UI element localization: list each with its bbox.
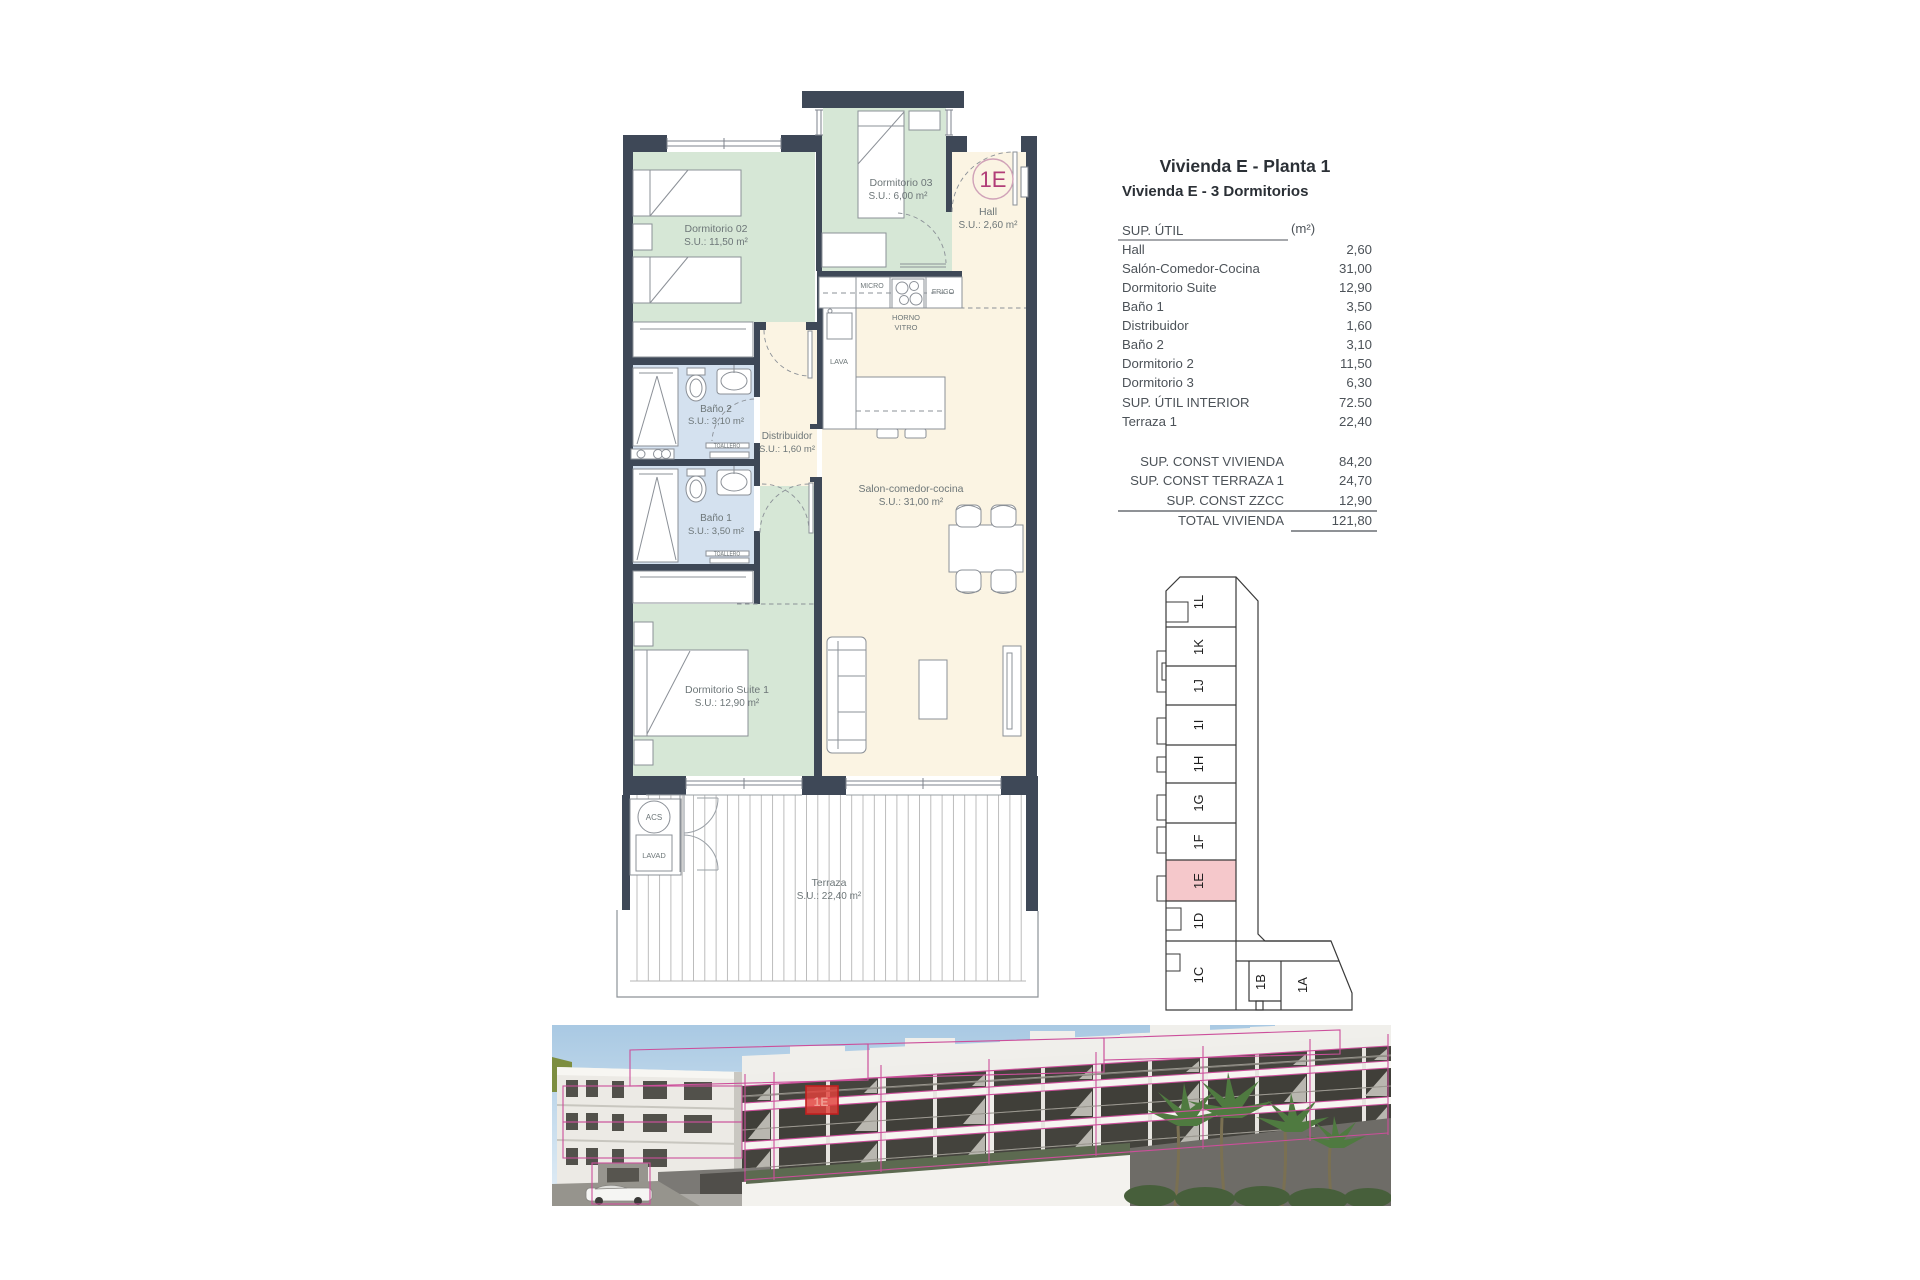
- svg-text:LAVA: LAVA: [830, 357, 848, 366]
- svg-text:1E: 1E: [1191, 873, 1206, 889]
- svg-text:Baño 1: Baño 1: [700, 513, 732, 524]
- svg-text:TOALLERO: TOALLERO: [714, 444, 741, 450]
- svg-text:1L: 1L: [1191, 595, 1206, 609]
- svg-text:S.U.: 1,60 m²: S.U.: 1,60 m²: [759, 444, 815, 455]
- svg-text:Vivienda E - Planta 1: Vivienda E - Planta 1: [1160, 156, 1331, 176]
- svg-text:12,90: 12,90: [1339, 493, 1372, 508]
- svg-text:VITRO: VITRO: [895, 323, 918, 332]
- svg-text:24,70: 24,70: [1339, 473, 1372, 488]
- svg-text:S.U.: 2,60 m²: S.U.: 2,60 m²: [959, 220, 1019, 231]
- svg-text:Baño 2: Baño 2: [700, 404, 732, 415]
- svg-text:1G: 1G: [1191, 794, 1206, 811]
- svg-text:1E: 1E: [814, 1095, 829, 1109]
- svg-text:S.U.: 3,50 m²: S.U.: 3,50 m²: [688, 526, 744, 537]
- svg-text:Salon-comedor-cocina: Salon-comedor-cocina: [858, 483, 963, 495]
- svg-text:Terraza: Terraza: [811, 877, 846, 889]
- svg-text:S.U.: 6,00 m²: S.U.: 6,00 m²: [869, 191, 929, 202]
- svg-text:Baño 1: Baño 1: [1122, 299, 1164, 314]
- svg-text:Dormitorio 02: Dormitorio 02: [684, 223, 747, 235]
- svg-text:1B: 1B: [1253, 974, 1268, 990]
- svg-text:1,60: 1,60: [1346, 318, 1372, 333]
- svg-text:3,10: 3,10: [1346, 337, 1372, 352]
- svg-text:11,50: 11,50: [1340, 356, 1372, 371]
- svg-text:Dormitorio 3: Dormitorio 3: [1122, 375, 1194, 390]
- svg-text:TOTAL VIVIENDA: TOTAL VIVIENDA: [1178, 513, 1284, 528]
- svg-text:3,50: 3,50: [1346, 299, 1372, 314]
- svg-text:Vivienda E - 3 Dormitorios: Vivienda E - 3 Dormitorios: [1122, 183, 1308, 200]
- svg-text:1A: 1A: [1295, 977, 1310, 993]
- svg-text:SUP. ÚTIL: SUP. ÚTIL: [1122, 223, 1183, 238]
- svg-text:Dormitorio Suite 1: Dormitorio Suite 1: [685, 684, 769, 696]
- svg-text:Dormitorio 2: Dormitorio 2: [1122, 356, 1194, 371]
- svg-text:SUP. CONST TERRAZA 1: SUP. CONST TERRAZA 1: [1130, 473, 1284, 488]
- svg-text:HORNO: HORNO: [892, 313, 920, 322]
- svg-text:1K: 1K: [1191, 639, 1206, 655]
- svg-text:31,00: 31,00: [1339, 261, 1372, 276]
- svg-text:SUP. CONST ZZCC: SUP. CONST ZZCC: [1167, 493, 1285, 508]
- svg-text:121,80: 121,80: [1332, 513, 1372, 528]
- svg-text:Distribuidor: Distribuidor: [1122, 318, 1189, 333]
- svg-text:12,90: 12,90: [1339, 280, 1372, 295]
- svg-text:ACS: ACS: [646, 813, 662, 822]
- svg-text:SUP. ÚTIL INTERIOR: SUP. ÚTIL INTERIOR: [1122, 395, 1250, 410]
- svg-text:1C: 1C: [1191, 967, 1206, 984]
- svg-text:1I: 1I: [1191, 720, 1206, 731]
- svg-text:22,40: 22,40: [1339, 414, 1372, 429]
- svg-text:Salón-Comedor-Cocina: Salón-Comedor-Cocina: [1122, 261, 1260, 276]
- svg-text:Distribuidor: Distribuidor: [762, 431, 813, 442]
- svg-text:MICRO: MICRO: [860, 283, 884, 290]
- svg-text:SUP. CONST VIVIENDA: SUP. CONST VIVIENDA: [1140, 454, 1284, 469]
- svg-text:1F: 1F: [1191, 834, 1206, 849]
- svg-text:1D: 1D: [1191, 913, 1206, 930]
- svg-text:S.U.: 12,90 m²: S.U.: 12,90 m²: [695, 698, 760, 709]
- svg-text:1H: 1H: [1191, 756, 1206, 773]
- svg-text:FRIGO: FRIGO: [932, 289, 955, 296]
- svg-text:Baño 2: Baño 2: [1122, 337, 1164, 352]
- svg-text:S.U.: 22,40 m²: S.U.: 22,40 m²: [797, 891, 862, 902]
- svg-text:Dormitorio Suite: Dormitorio Suite: [1122, 280, 1217, 295]
- svg-text:72.50: 72.50: [1339, 395, 1372, 410]
- svg-text:2,60: 2,60: [1346, 242, 1372, 257]
- svg-text:1E: 1E: [980, 167, 1007, 192]
- svg-text:Hall: Hall: [1122, 242, 1145, 257]
- svg-text:TOALLERO: TOALLERO: [714, 552, 741, 558]
- svg-text:(m²): (m²): [1291, 221, 1315, 236]
- svg-text:S.U.: 3,10 m²: S.U.: 3,10 m²: [688, 416, 744, 427]
- svg-text:1J: 1J: [1191, 679, 1206, 693]
- svg-text:Terraza 1: Terraza 1: [1122, 414, 1177, 429]
- svg-text:S.U.: 31,00 m²: S.U.: 31,00 m²: [879, 497, 944, 508]
- svg-text:84,20: 84,20: [1339, 454, 1372, 469]
- svg-text:S.U.: 11,50 m²: S.U.: 11,50 m²: [684, 237, 748, 248]
- svg-text:Hall: Hall: [979, 206, 997, 218]
- svg-text:6,30: 6,30: [1346, 375, 1372, 390]
- svg-text:Dormitorio 03: Dormitorio 03: [869, 177, 932, 189]
- svg-text:LAVAD: LAVAD: [642, 851, 666, 860]
